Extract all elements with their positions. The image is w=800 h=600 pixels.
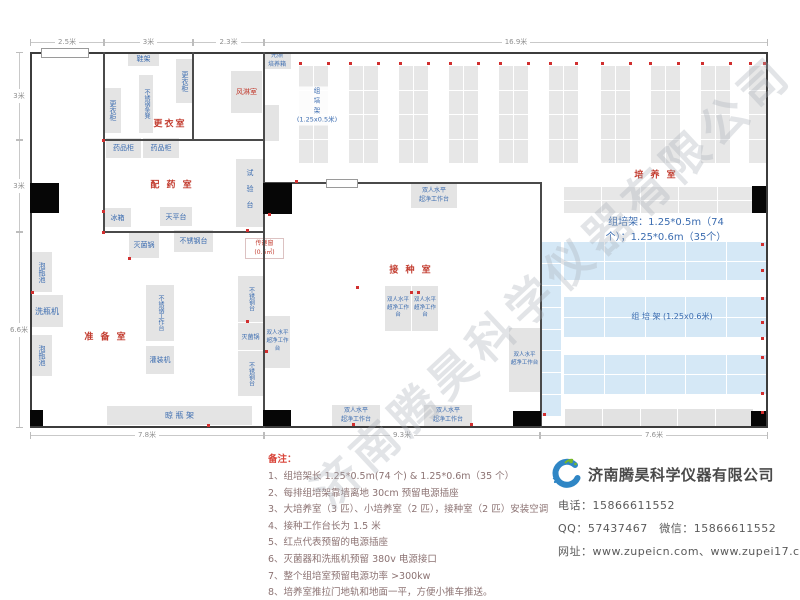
power-socket-dot [761, 321, 764, 324]
dimension-label: 3米 [12, 140, 26, 232]
power-socket-dot [701, 62, 704, 65]
power-socket-dot [102, 210, 105, 213]
note-item: 8、培养室推拉门地轨和地面一平，方便小推车推送。 [268, 585, 548, 600]
door-block [513, 411, 541, 426]
power-socket-dot [749, 62, 752, 65]
note-item: 6、灭菌器和洗瓶机预留 380v 电源接口 [268, 552, 548, 569]
note-item: 5、红点代表预留的电源插座 [268, 535, 548, 552]
power-socket-dot [207, 424, 210, 427]
power-socket-dot [246, 320, 249, 323]
rack-spec-label: 组 培 架 (1.25x0.6米) [631, 311, 712, 323]
power-socket-dot [761, 243, 764, 246]
dimension-label: 2.3米 [193, 37, 264, 47]
rack-spec-label: 组 培 架 (1.25x0.5米) [297, 87, 337, 126]
power-socket-dot [761, 411, 764, 414]
power-socket-dot [470, 423, 473, 426]
dimension-label: 7.6米 [540, 430, 768, 440]
note-item: 3、大培养室（3 匹）、小培养室（2 匹），接种室（2 匹）安装空调 [268, 502, 548, 519]
window-opening [326, 179, 358, 188]
power-socket-dot [629, 62, 632, 65]
power-socket-dot [761, 337, 764, 340]
interior-wall [263, 52, 265, 428]
door-block [263, 183, 292, 214]
company-block: TH 济南腾昊科学仪器有限公司 电话：15866611552QQ：5743746… [550, 458, 790, 559]
rack-spec-label: 组培架：1.25*0.5m（74个）；1.25*0.6m（35个） [599, 215, 733, 245]
contact-lines: 电话：15866611552QQ：57437467 微信：15866611552… [550, 497, 790, 559]
power-socket-dot [549, 62, 552, 65]
power-socket-dot [761, 356, 764, 359]
power-socket-dot [399, 62, 402, 65]
power-socket-dot [102, 231, 105, 234]
interior-wall [192, 52, 194, 140]
lab-floor-plan-page: 鞋架更衣柜不锈钢条凳更衣柜风淋室光照 培养箱药品柜药品柜试验台冰箱天平台泡瓶池洗… [0, 0, 800, 600]
power-socket-dot [763, 62, 766, 65]
door-block [752, 186, 766, 213]
dimension-label: 3米 [12, 52, 26, 140]
room-label: 更衣室 [153, 117, 186, 130]
power-socket-dot [477, 62, 480, 65]
note-item: 7、整个组培室预留电源功率 >300kw [268, 569, 548, 586]
interior-wall [263, 182, 542, 184]
power-socket-dot [761, 269, 764, 272]
power-socket-dot [128, 257, 131, 260]
power-socket-dot [649, 62, 652, 65]
power-socket-dot [729, 62, 732, 65]
contact-line: QQ：57437467 微信：15866611552 [558, 520, 790, 536]
power-socket-dot [352, 423, 355, 426]
power-socket-dot [349, 62, 352, 65]
dimension-label: 16.9米 [264, 37, 768, 47]
notes-title: 备注： [268, 451, 548, 465]
power-socket-dot [761, 392, 764, 395]
window-opening [41, 48, 89, 58]
interior-wall [103, 231, 265, 233]
power-socket-dot [499, 62, 502, 65]
power-socket-dot [543, 413, 546, 416]
dimension-label: 2.5米 [30, 37, 104, 47]
dimension-label: 6.6米 [12, 232, 26, 428]
power-socket-dot [527, 62, 530, 65]
power-socket-dot [427, 62, 430, 65]
room-label: 培 养 室 [634, 168, 677, 181]
power-socket-dot [761, 297, 764, 300]
company-logo-icon: TH [550, 458, 582, 490]
door-block [30, 183, 59, 213]
contact-line: 电话：15866611552 [558, 497, 790, 513]
power-socket-dot [677, 62, 680, 65]
interior-wall [540, 183, 542, 428]
power-socket-dot [410, 291, 413, 294]
power-socket-dot [449, 62, 452, 65]
power-socket-dot [299, 62, 302, 65]
contact-line: 网址：www.zupeicn.com、www.zupei17.com [558, 543, 790, 559]
power-socket-dot [575, 62, 578, 65]
notes-list: 1、组培架长 1.25*0.5m(74 个) & 1.25*0.6m（35 个）… [268, 469, 548, 600]
power-socket-dot [377, 62, 380, 65]
power-socket-dot [356, 286, 359, 289]
note-item: 2、每排组培架靠墙离地 30cm 预留电源插座 [268, 486, 548, 503]
room-label: 配 药 室 [150, 178, 193, 191]
door-block [30, 410, 43, 426]
power-socket-dot [265, 350, 268, 353]
logo-th-text: TH [559, 471, 571, 480]
note-item: 4、接种工作台长为 1.5 米 [268, 519, 548, 536]
interior-wall [103, 52, 105, 232]
power-socket-dot [31, 291, 34, 294]
interior-wall [103, 139, 265, 141]
company-header: TH 济南腾昊科学仪器有限公司 [550, 458, 790, 490]
power-socket-dot [327, 62, 330, 65]
door-block [263, 410, 291, 426]
notes-block: 备注： 1、组培架长 1.25*0.5m(74 个) & 1.25*0.6m（3… [268, 451, 548, 600]
power-socket-dot [295, 180, 298, 183]
company-name: 济南腾昊科学仪器有限公司 [588, 464, 774, 485]
dimension-label: 9.3米 [264, 430, 540, 440]
note-item: 1、组培架长 1.25*0.5m(74 个) & 1.25*0.6m（35 个） [268, 469, 548, 486]
room-label: 接 种 室 [389, 263, 432, 276]
power-socket-dot [601, 62, 604, 65]
power-socket-dot [417, 291, 420, 294]
power-socket-dot [246, 229, 249, 232]
power-socket-dot [102, 139, 105, 142]
dimension-label: 7.8米 [30, 430, 264, 440]
dimension-label: 3米 [104, 37, 193, 47]
power-socket-dot [268, 213, 271, 216]
room-label: 准 备 室 [84, 330, 127, 343]
